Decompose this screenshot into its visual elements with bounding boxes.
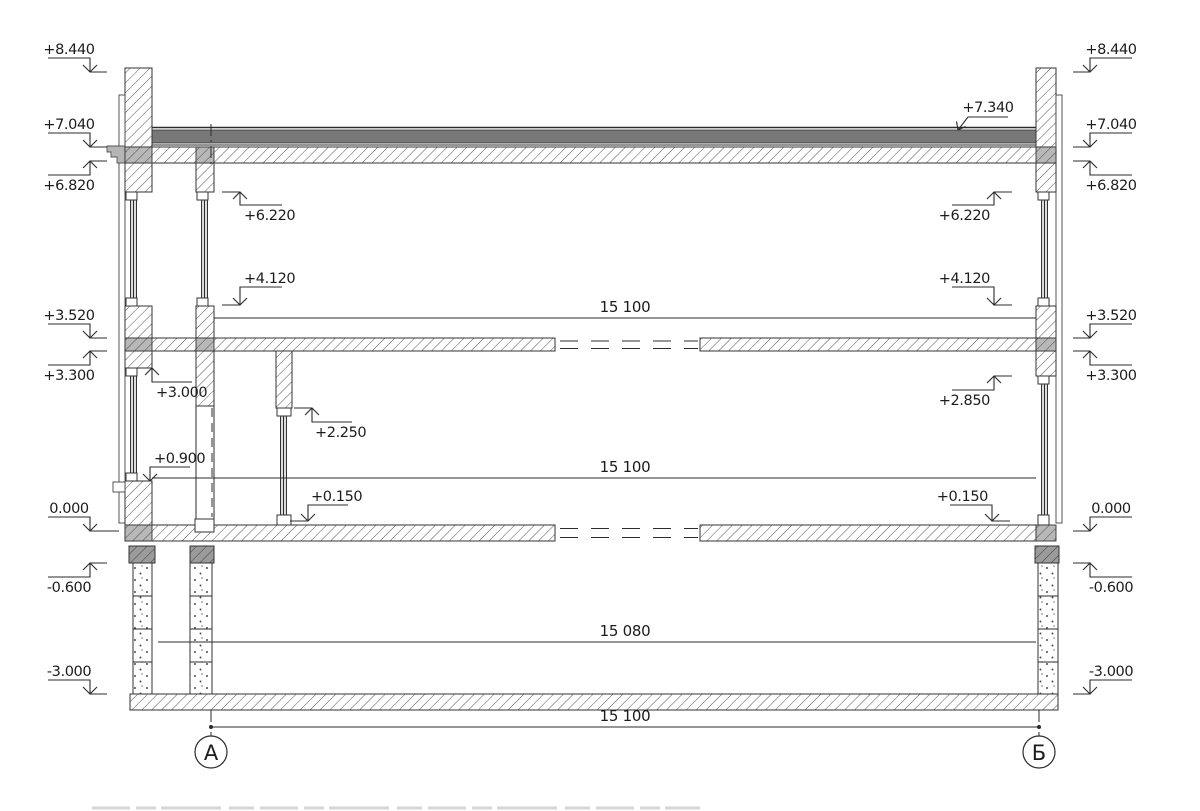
elevation-mark [1073, 563, 1132, 577]
partition-pier [276, 351, 292, 408]
elevation-label: +6.820 [1085, 178, 1136, 194]
elevation-mark [950, 505, 1010, 521]
ground-slab-left [125, 525, 555, 541]
elevation-label: -3.000 [47, 664, 92, 680]
elevation-mark [1073, 517, 1132, 531]
elevation-label: +2.250 [315, 425, 366, 441]
crossing [1036, 338, 1056, 351]
left-ledge [113, 482, 125, 492]
floor2-slab [125, 338, 1036, 351]
left-window2-sill-frame [126, 298, 137, 306]
left-pier-base [125, 481, 152, 525]
right-pier-f2 [1036, 306, 1056, 338]
elevation-label: +4.120 [939, 271, 990, 287]
elevation-mark [134, 368, 192, 382]
crossing [125, 147, 152, 163]
elevation-label: +6.220 [244, 208, 295, 224]
left-flashing [107, 146, 125, 163]
ground-slab-right [700, 525, 1036, 541]
interior-pier-f2 [196, 306, 214, 338]
floor2-slab-right [700, 338, 1036, 351]
elevation-mark [1073, 324, 1132, 338]
elevation-label: +2.850 [939, 393, 990, 409]
foundation-slab [130, 694, 1058, 710]
elevation-mark [1073, 58, 1132, 72]
elevation-label: +3.000 [156, 385, 207, 401]
elevation-marks-left: +8.440 +7.040 +6.820 +3.520 +3.300 0.000… [43, 42, 119, 694]
elevation-label: +4.120 [244, 271, 295, 287]
right-window1-base-frame [1038, 515, 1049, 525]
elevation-label: +0.150 [937, 489, 988, 505]
dim-label-2: 15 100 [600, 458, 651, 476]
dim-label-1: 15 100 [600, 298, 651, 316]
elevation-mark [48, 517, 119, 531]
right-window2-head-frame [1038, 192, 1049, 200]
elevation-mark [1073, 133, 1132, 147]
elevation-mark [222, 192, 282, 205]
elevation-mark [294, 408, 352, 422]
floor2-slab-left [125, 338, 555, 351]
building-section-sheet: А Б 15 100 15 100 15 080 15 100 +8.440 +… [0, 0, 1200, 811]
dim-end-dot [1037, 725, 1041, 729]
elevation-mark [222, 287, 282, 305]
elevation-label: +8.440 [43, 42, 94, 58]
left-foundation-cap [129, 546, 155, 563]
elevation-label: -0.600 [1089, 580, 1134, 596]
elevation-mark [48, 133, 107, 147]
left-pier-roof [125, 163, 152, 192]
roof-assembly [125, 128, 1056, 164]
right-pier-f1-head [1036, 351, 1056, 376]
elevation-mark [1073, 351, 1132, 365]
elevation-label: -3.000 [1089, 664, 1134, 680]
interior-window2-sill-frame [197, 298, 208, 306]
partition-wall [276, 351, 292, 525]
elevation-mark [952, 376, 1012, 390]
elevation-label: +7.040 [1085, 117, 1136, 133]
dim-label-4: 15 100 [600, 707, 651, 725]
axis-label-a: А [204, 741, 219, 765]
elevation-label: -0.600 [47, 580, 92, 596]
elevation-mark [1073, 680, 1132, 694]
elevation-mark [290, 505, 348, 521]
elevation-label: +6.820 [43, 178, 94, 194]
elevation-label: +0.900 [154, 451, 205, 467]
right-foundation-cap [1035, 546, 1059, 563]
elevation-mark [132, 467, 190, 481]
right-pier-roof [1036, 163, 1056, 192]
elevation-mark [952, 287, 1012, 305]
roof-finish-band [152, 130, 1036, 143]
elevation-label: +3.300 [1085, 368, 1136, 384]
elevation-mark [48, 351, 107, 365]
axis-label-b: Б [1032, 741, 1046, 765]
elevation-mark [48, 58, 107, 72]
elevation-label: +0.150 [311, 489, 362, 505]
elevation-mark [952, 192, 1012, 205]
left-pier-f1-head [125, 351, 152, 368]
elevation-marks-right: +8.440 +7.040 +6.820 +3.520 +3.300 0.000… [1073, 42, 1137, 694]
crossing [1036, 147, 1056, 163]
right-window2-sill-frame [1038, 298, 1049, 306]
elevation-label: +8.440 [1085, 42, 1136, 58]
interior-foundation-cap [190, 546, 214, 563]
partition-window-base-frame [277, 515, 291, 525]
left-window1-sill-frame [126, 473, 137, 481]
left-window2-head-frame [126, 192, 137, 200]
elevation-label: 0.000 [49, 501, 89, 517]
elevation-label: 0.000 [1091, 501, 1131, 517]
right-cladding-strip [1056, 95, 1062, 523]
elevation-label: +6.220 [939, 208, 990, 224]
left-pier-f2 [125, 306, 152, 338]
elevation-mark [48, 680, 107, 694]
roof-slab [125, 147, 1056, 163]
ground-slab [125, 525, 1036, 541]
right-parapet [1036, 68, 1056, 147]
interior-pier-roof [196, 163, 214, 192]
elevation-mark [48, 563, 107, 577]
elevation-label: +3.300 [43, 368, 94, 384]
elevation-mark [48, 161, 107, 175]
dim-end-dot [209, 725, 213, 729]
dim-label-3: 15 080 [600, 622, 651, 640]
left-parapet [125, 68, 152, 147]
left-window1-head-frame [126, 368, 137, 376]
crossing [1036, 525, 1056, 541]
elevation-label: +7.340 [962, 100, 1013, 116]
elevation-label: +7.040 [43, 117, 94, 133]
elevation-label: +3.520 [43, 308, 94, 324]
elevation-mark [48, 324, 107, 338]
partition-window-head-frame [277, 408, 291, 416]
crossing [125, 338, 152, 351]
axes: А Б [195, 124, 1055, 768]
elevation-mark [1073, 161, 1132, 175]
interior-window2-head-frame [197, 192, 208, 200]
right-window1-head-frame [1038, 376, 1049, 384]
interior-wall [190, 163, 214, 694]
elevation-label: +3.520 [1085, 308, 1136, 324]
building-section-drawing: А Б 15 100 15 100 15 080 15 100 +8.440 +… [0, 0, 1200, 811]
crossing [125, 525, 152, 541]
crossing [196, 338, 214, 351]
interior-threshold [195, 519, 214, 532]
